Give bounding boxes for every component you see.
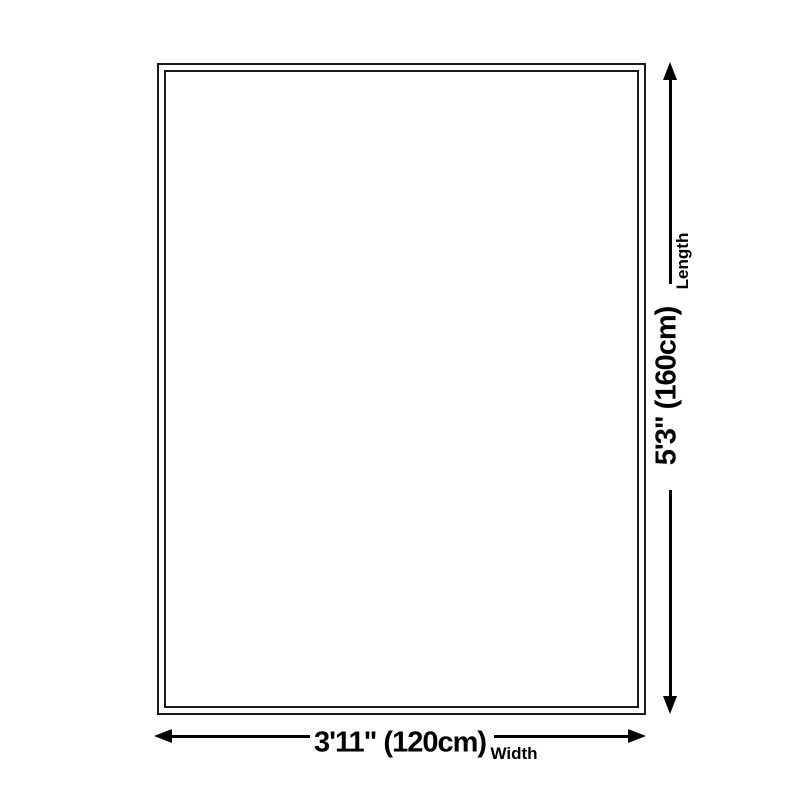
rug-outer-border	[157, 63, 646, 715]
length-label: Length	[673, 233, 693, 290]
rug-inner-border	[164, 70, 639, 708]
length-value: 5'3" (160cm)	[651, 307, 684, 466]
arrow-down-icon	[663, 696, 677, 714]
width-arrow-line-left	[170, 735, 310, 738]
rug-size-diagram: Length 5'3" (160cm) 3'11" (120cm) Width	[0, 0, 800, 800]
length-arrow-line-lower	[669, 490, 672, 700]
width-arrow-line-right	[494, 735, 630, 738]
arrow-right-icon	[628, 729, 646, 743]
width-label: Width	[490, 744, 537, 764]
width-value: 3'11" (120cm)	[314, 727, 486, 760]
length-arrow-line-upper	[669, 78, 672, 284]
